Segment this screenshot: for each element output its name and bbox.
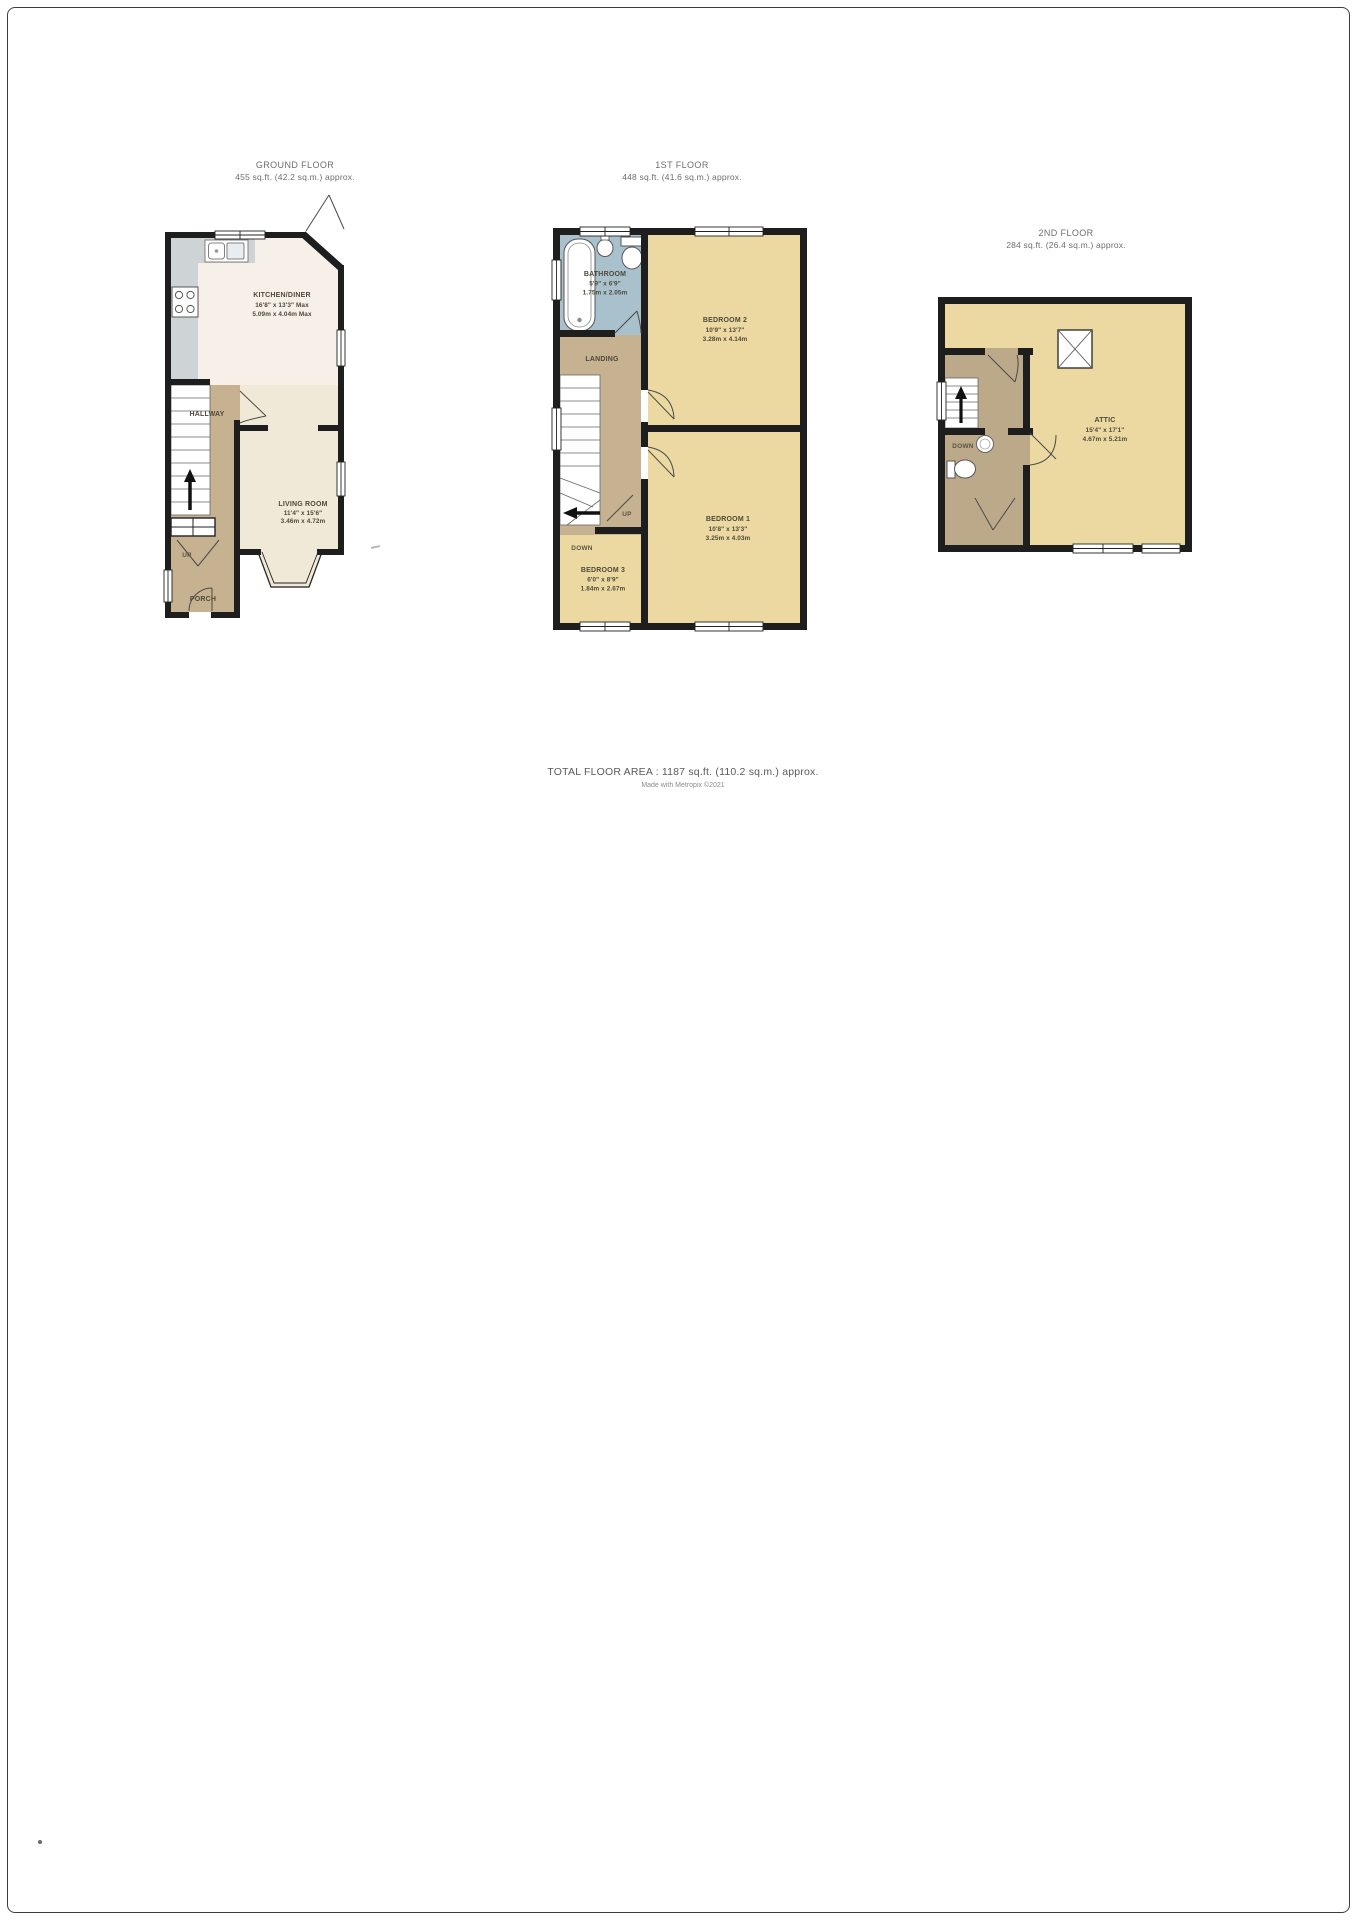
kitchen-sink-icon xyxy=(205,240,248,262)
second-floor-header: 2ND FLOOR 284 sq.ft. (26.4 sq.m.) approx… xyxy=(941,228,1191,250)
second-floor-area: 284 sq.ft. (26.4 sq.m.) approx. xyxy=(941,240,1191,250)
floorplan-page: GROUND FLOOR 455 sq.ft. (42.2 sq.m.) app… xyxy=(0,0,1357,1920)
room-dim-bathroom-metric: 1.75m x 2.05m xyxy=(583,290,628,297)
first-floor-plan: BATHROOM 5'9" x 6'9" 1.75m x 2.05m LANDI… xyxy=(545,175,815,640)
ground-floor-header: GROUND FLOOR 455 sq.ft. (42.2 sq.m.) app… xyxy=(170,160,420,182)
room-dim-living-metric: 3.46m x 4.72m xyxy=(281,518,326,525)
room-dim-living-imperial: 11'4" x 15'6" xyxy=(284,510,322,517)
room-label-bedroom-2: BEDROOM 2 xyxy=(703,317,747,324)
stair-label-up: UP xyxy=(182,552,192,559)
room-label-hallway: HALLWAY xyxy=(190,411,225,418)
sink-icon xyxy=(977,436,994,453)
room-label-bedroom-1: BEDROOM 1 xyxy=(706,516,750,523)
room-dim-bedroom-3-metric: 1.84m x 2.67m xyxy=(581,586,626,593)
kitchen-counter xyxy=(171,263,198,380)
room-label-porch: PORCH xyxy=(190,596,216,603)
room-dim-bedroom-3-imperial: 6'0" x 8'9" xyxy=(587,577,619,584)
room-dim-bedroom-1-imperial: 10'8" x 13'3" xyxy=(709,526,748,533)
room-label-bedroom-3: BEDROOM 3 xyxy=(581,567,625,574)
scan-artifact-dot xyxy=(38,1840,42,1844)
skylight-icon xyxy=(1058,330,1092,368)
room-dim-attic-metric: 4.67m x 5.21m xyxy=(1083,436,1128,443)
room-dim-bedroom-1-metric: 3.25m x 4.03m xyxy=(706,535,751,542)
room-label-bathroom: BATHROOM xyxy=(584,271,626,278)
room-dim-kitchen-imperial: 16'8" x 13'3" Max xyxy=(255,302,309,309)
stairs-icon xyxy=(560,375,600,525)
porch-window-panel xyxy=(171,518,215,536)
stair-label-up: UP xyxy=(622,511,632,518)
room-dim-bathroom-imperial: 5'9" x 6'9" xyxy=(589,281,621,288)
ground-floor-title: GROUND FLOOR xyxy=(170,160,420,170)
second-floor-plan: DOWN ATTIC 15'4" x 17'1" 4.67m x 5.21m xyxy=(930,290,1200,560)
stair-label-down: DOWN xyxy=(571,545,593,552)
toilet-icon xyxy=(621,237,643,269)
room-label-landing: LANDING xyxy=(585,356,619,363)
metropix-credit: Made with Metropix ©2021 xyxy=(483,782,883,789)
stairs-icon xyxy=(171,385,210,515)
first-floor-title: 1ST FLOOR xyxy=(557,160,807,170)
room-dim-kitchen-metric: 5.09m x 4.04m Max xyxy=(252,311,312,318)
stairs-icon xyxy=(945,378,978,428)
footer: TOTAL FLOOR AREA : 1187 sq.ft. (110.2 sq… xyxy=(483,766,883,789)
toilet-icon xyxy=(947,460,976,478)
room-label-attic: ATTIC xyxy=(1094,417,1115,424)
room-dim-bedroom-2-imperial: 10'9" x 13'7" xyxy=(706,327,745,334)
second-floor-title: 2ND FLOOR xyxy=(941,228,1191,238)
room-label-kitchen: KITCHEN/DINER xyxy=(253,292,310,299)
hob-icon xyxy=(172,287,198,317)
room-living xyxy=(240,385,341,588)
room-label-living: LIVING ROOM xyxy=(278,501,327,508)
stair-label-down: DOWN xyxy=(952,443,974,450)
total-floor-area: TOTAL FLOOR AREA : 1187 sq.ft. (110.2 sq… xyxy=(483,766,883,778)
open-door-lines xyxy=(306,195,344,231)
room-dim-attic-imperial: 15'4" x 17'1" xyxy=(1086,427,1125,434)
ground-floor-plan: KITCHEN/DINER 16'8" x 13'3" Max 5.09m x … xyxy=(160,180,355,630)
scan-artifact-mark xyxy=(371,545,380,549)
room-dim-bedroom-2-metric: 3.28m x 4.14m xyxy=(703,336,748,343)
